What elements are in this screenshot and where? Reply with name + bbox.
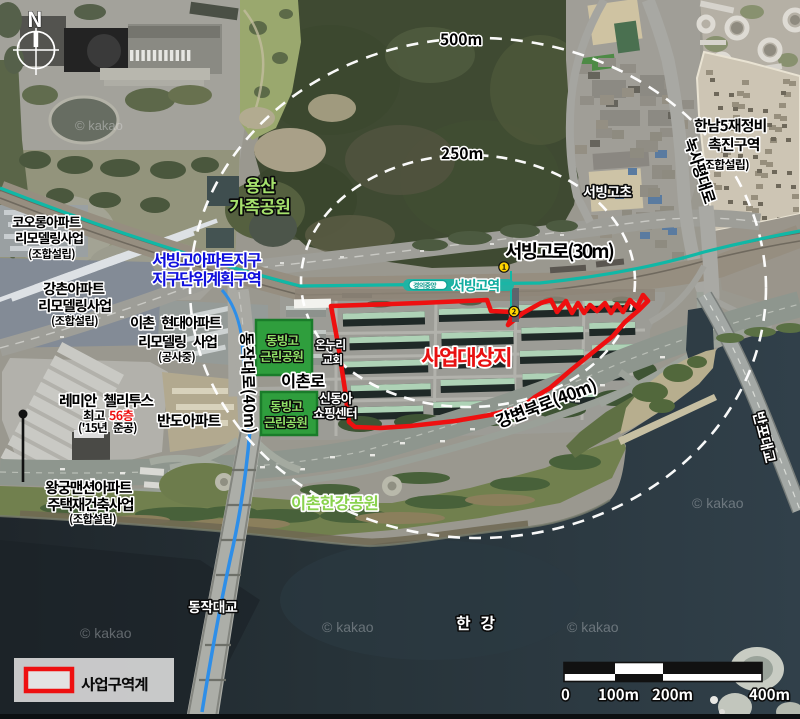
svg-text:© kakao: © kakao — [567, 619, 619, 635]
svg-text:© kakao: © kakao — [80, 625, 132, 641]
svg-text:© kakao: © kakao — [75, 118, 123, 133]
svg-text:© kakao: © kakao — [322, 619, 374, 635]
svg-text:© kakao: © kakao — [692, 495, 744, 511]
